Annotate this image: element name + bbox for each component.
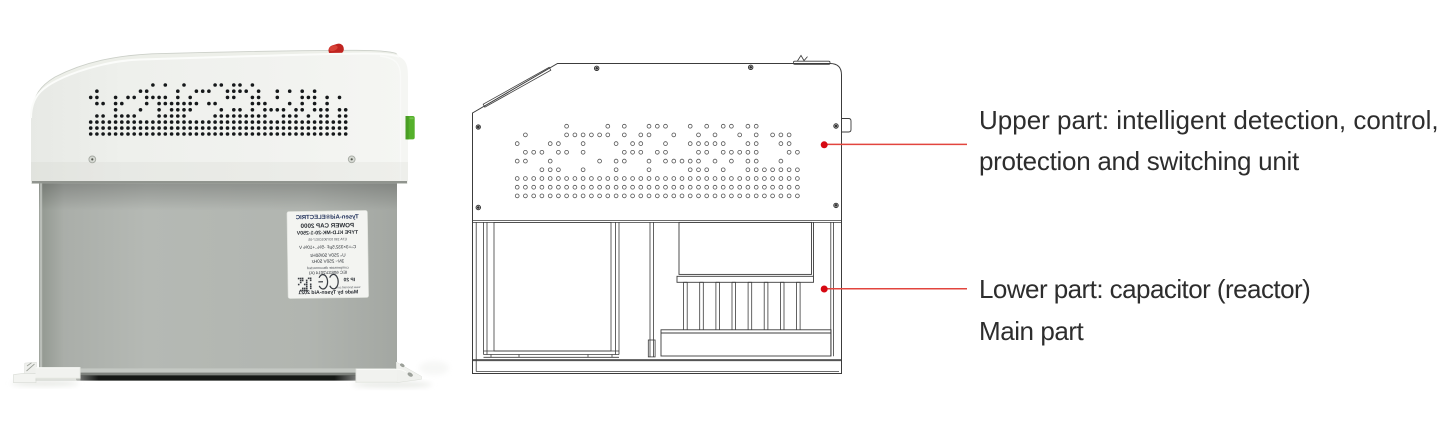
svg-text:IEC 60831/2014 (A): IEC 60831/2014 (A) xyxy=(308,270,347,276)
svg-text:3N~ 250V 50Hz: 3N~ 250V 50Hz xyxy=(311,258,344,263)
svg-text:Cₙ=3×332,5μF -5%..+10% V: Cₙ=3×332,5μF -5%..+10% V xyxy=(299,244,356,250)
svg-text:IP 20: IP 20 xyxy=(343,277,355,283)
svg-text:POWER CAP 2000: POWER CAP 2000 xyxy=(300,222,354,230)
svg-text:Tysen-Aid®ELECTRIC: Tysen-Aid®ELECTRIC xyxy=(295,213,359,221)
svg-text:Uₙ 250V 50/60Hz: Uₙ 250V 50/60Hz xyxy=(309,252,345,258)
svg-text:ETA 190 037901/2017-05: ETA 190 037901/2017-05 xyxy=(308,237,347,242)
svg-text:TYPE KLD-MK-20-1-250V: TYPE KLD-MK-20-1-250V xyxy=(296,230,358,237)
